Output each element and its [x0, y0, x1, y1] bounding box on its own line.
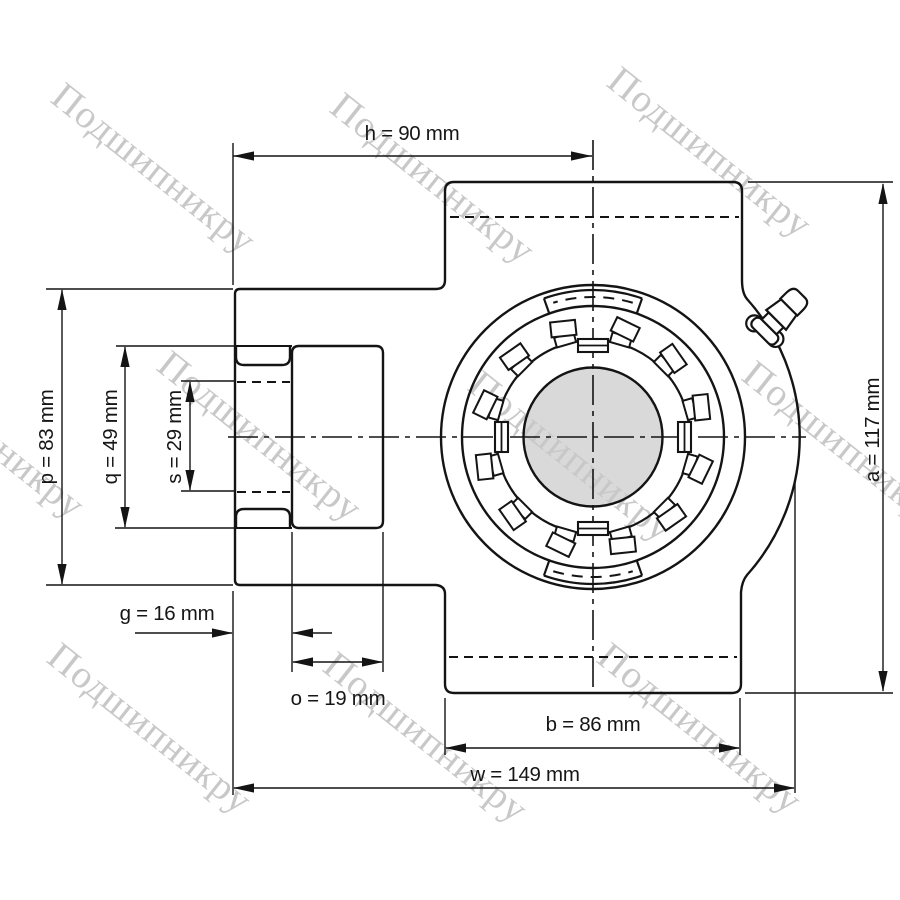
dimension-arrowhead: [120, 346, 129, 367]
collar-tooth-outer: [550, 320, 576, 338]
dimension-arrowhead: [233, 151, 254, 160]
drawing-canvas: Подшипникру Подшипникру Подшипникру Подш…: [0, 0, 900, 900]
slot-channel-upper: [236, 346, 290, 365]
snap-ring-end-tick: [637, 560, 642, 575]
dimension-label-h: h = 90 mm: [365, 122, 460, 145]
dimension-arrowhead: [185, 470, 194, 491]
collar-tooth: [548, 316, 581, 348]
snap-ring-end-tick: [544, 560, 549, 575]
dimension-label-w: w = 149 mm: [469, 763, 579, 786]
dimension-arrowhead: [57, 289, 66, 310]
dimension-label-a: a = 117 mm: [861, 378, 884, 482]
collar-notch: [578, 339, 608, 352]
watermark-text: Подшипникру: [315, 643, 536, 831]
dimension-label-p: p = 83 mm: [35, 390, 58, 485]
dimension-label-s: s = 29 mm: [163, 390, 186, 484]
dimension-arrowhead: [878, 671, 887, 692]
dimension-arrowhead: [57, 564, 66, 585]
dimension-arrowhead: [292, 657, 313, 666]
dimension-arrowhead: [362, 657, 383, 666]
collar-tooth: [472, 449, 504, 482]
collar-tooth: [496, 494, 534, 532]
collar-tooth: [545, 525, 578, 557]
dimension-arrowhead: [292, 628, 313, 637]
watermark-text: Подшипникру: [599, 58, 820, 246]
collar-notch: [495, 422, 508, 452]
dimension-label-q: q = 49 mm: [99, 390, 122, 485]
collar-tooth-outer: [693, 394, 711, 420]
snap-ring-end-tick: [544, 298, 549, 313]
dimension-label-b: b = 86 mm: [546, 713, 641, 736]
dimension-label-g: g = 16 mm: [120, 602, 215, 625]
dimension-arrowhead: [212, 628, 233, 637]
collar-tooth: [652, 342, 690, 380]
collar-notch: [678, 422, 691, 452]
watermark-text: Подшипникру: [322, 84, 543, 272]
snap-ring-end-tick: [637, 298, 642, 313]
dimension-arrowhead: [878, 183, 887, 204]
technical-drawing: Подшипникру Подшипникру Подшипникру Подш…: [0, 0, 900, 900]
collar-tooth-outer: [476, 454, 494, 480]
collar-tooth-outer: [610, 537, 636, 555]
grease-fitting: [743, 280, 817, 354]
collar-tooth: [681, 452, 713, 485]
watermark-layer: Подшипникру Подшипникру Подшипникру Подш…: [0, 58, 900, 831]
watermark-text: Подшипникру: [43, 74, 264, 262]
slot-channel-lower: [236, 509, 290, 528]
watermark-text: Подшипникру: [39, 634, 260, 822]
collar-tooth: [682, 392, 714, 425]
dimension-arrowhead: [120, 507, 129, 528]
collar-notch: [578, 522, 608, 535]
dimension-label-o: o = 19 mm: [291, 687, 386, 710]
dimension-arrowhead: [571, 151, 592, 160]
collar-tooth: [498, 340, 536, 378]
collar-tooth: [608, 316, 641, 348]
